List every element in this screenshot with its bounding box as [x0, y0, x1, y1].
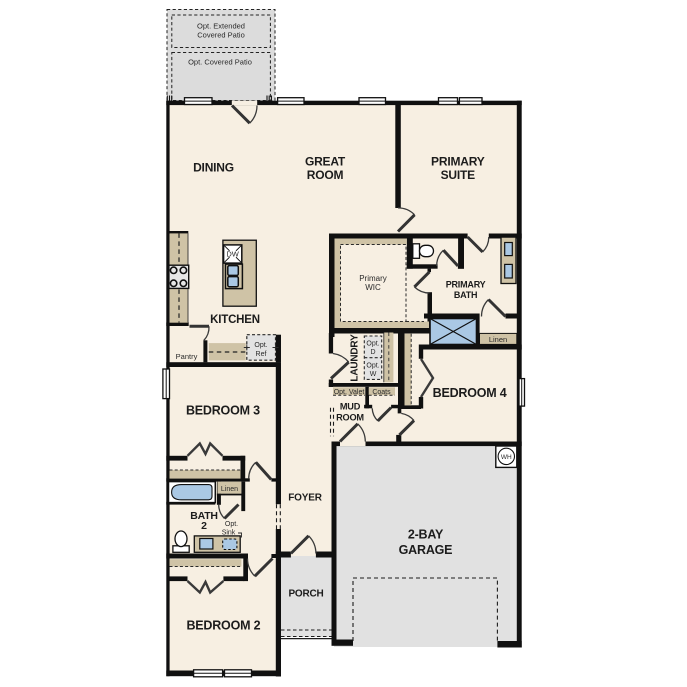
svg-text:FOYER: FOYER	[288, 493, 322, 504]
svg-text:Opt. Valet: Opt. Valet	[334, 389, 365, 396]
svg-text:PORCH: PORCH	[288, 589, 323, 600]
svg-text:BEDROOM 3: BEDROOM 3	[186, 404, 260, 418]
svg-text:DW: DW	[226, 250, 239, 259]
svg-text:Opt.: Opt.	[366, 363, 379, 370]
svg-text:SUITE: SUITE	[441, 168, 476, 182]
svg-text:PRIMARY: PRIMARY	[431, 155, 485, 169]
svg-text:2: 2	[201, 520, 207, 532]
svg-text:Pantry: Pantry	[176, 352, 198, 361]
svg-text:LAUNDRY: LAUNDRY	[350, 334, 361, 382]
svg-text:GARAGE: GARAGE	[399, 543, 453, 557]
svg-text:W: W	[370, 371, 377, 378]
svg-text:GREAT: GREAT	[305, 155, 346, 169]
svg-text:PRIMARY: PRIMARY	[446, 280, 486, 290]
svg-text:Opt. Extended: Opt. Extended	[197, 22, 245, 31]
svg-text:Linen: Linen	[489, 335, 507, 344]
svg-text:WIC: WIC	[365, 283, 381, 292]
svg-text:Opt.: Opt.	[366, 341, 379, 348]
svg-text:Primary: Primary	[359, 274, 387, 283]
svg-text:DINING: DINING	[193, 160, 234, 174]
svg-text:Coats: Coats	[372, 389, 391, 396]
svg-text:2-BAY: 2-BAY	[408, 528, 444, 542]
svg-text:ROOM: ROOM	[336, 412, 364, 422]
svg-text:MUD: MUD	[340, 402, 361, 412]
svg-text:Covered Patio: Covered Patio	[197, 31, 245, 40]
svg-text:ROOM: ROOM	[307, 168, 344, 182]
svg-text:BEDROOM 4: BEDROOM 4	[433, 386, 507, 400]
svg-text:Sink: Sink	[222, 530, 236, 537]
svg-text:Opt.: Opt.	[225, 521, 238, 528]
svg-text:Opt.: Opt.	[254, 342, 267, 349]
svg-text:WH: WH	[501, 454, 512, 461]
svg-text:Ref: Ref	[256, 351, 267, 358]
svg-text:BATH: BATH	[454, 290, 478, 300]
svg-text:BEDROOM 2: BEDROOM 2	[186, 618, 260, 632]
svg-text:KITCHEN: KITCHEN	[210, 314, 260, 326]
svg-text:Linen: Linen	[221, 486, 238, 493]
svg-text:D: D	[370, 349, 375, 356]
svg-text:Opt. Covered Patio: Opt. Covered Patio	[188, 58, 252, 67]
